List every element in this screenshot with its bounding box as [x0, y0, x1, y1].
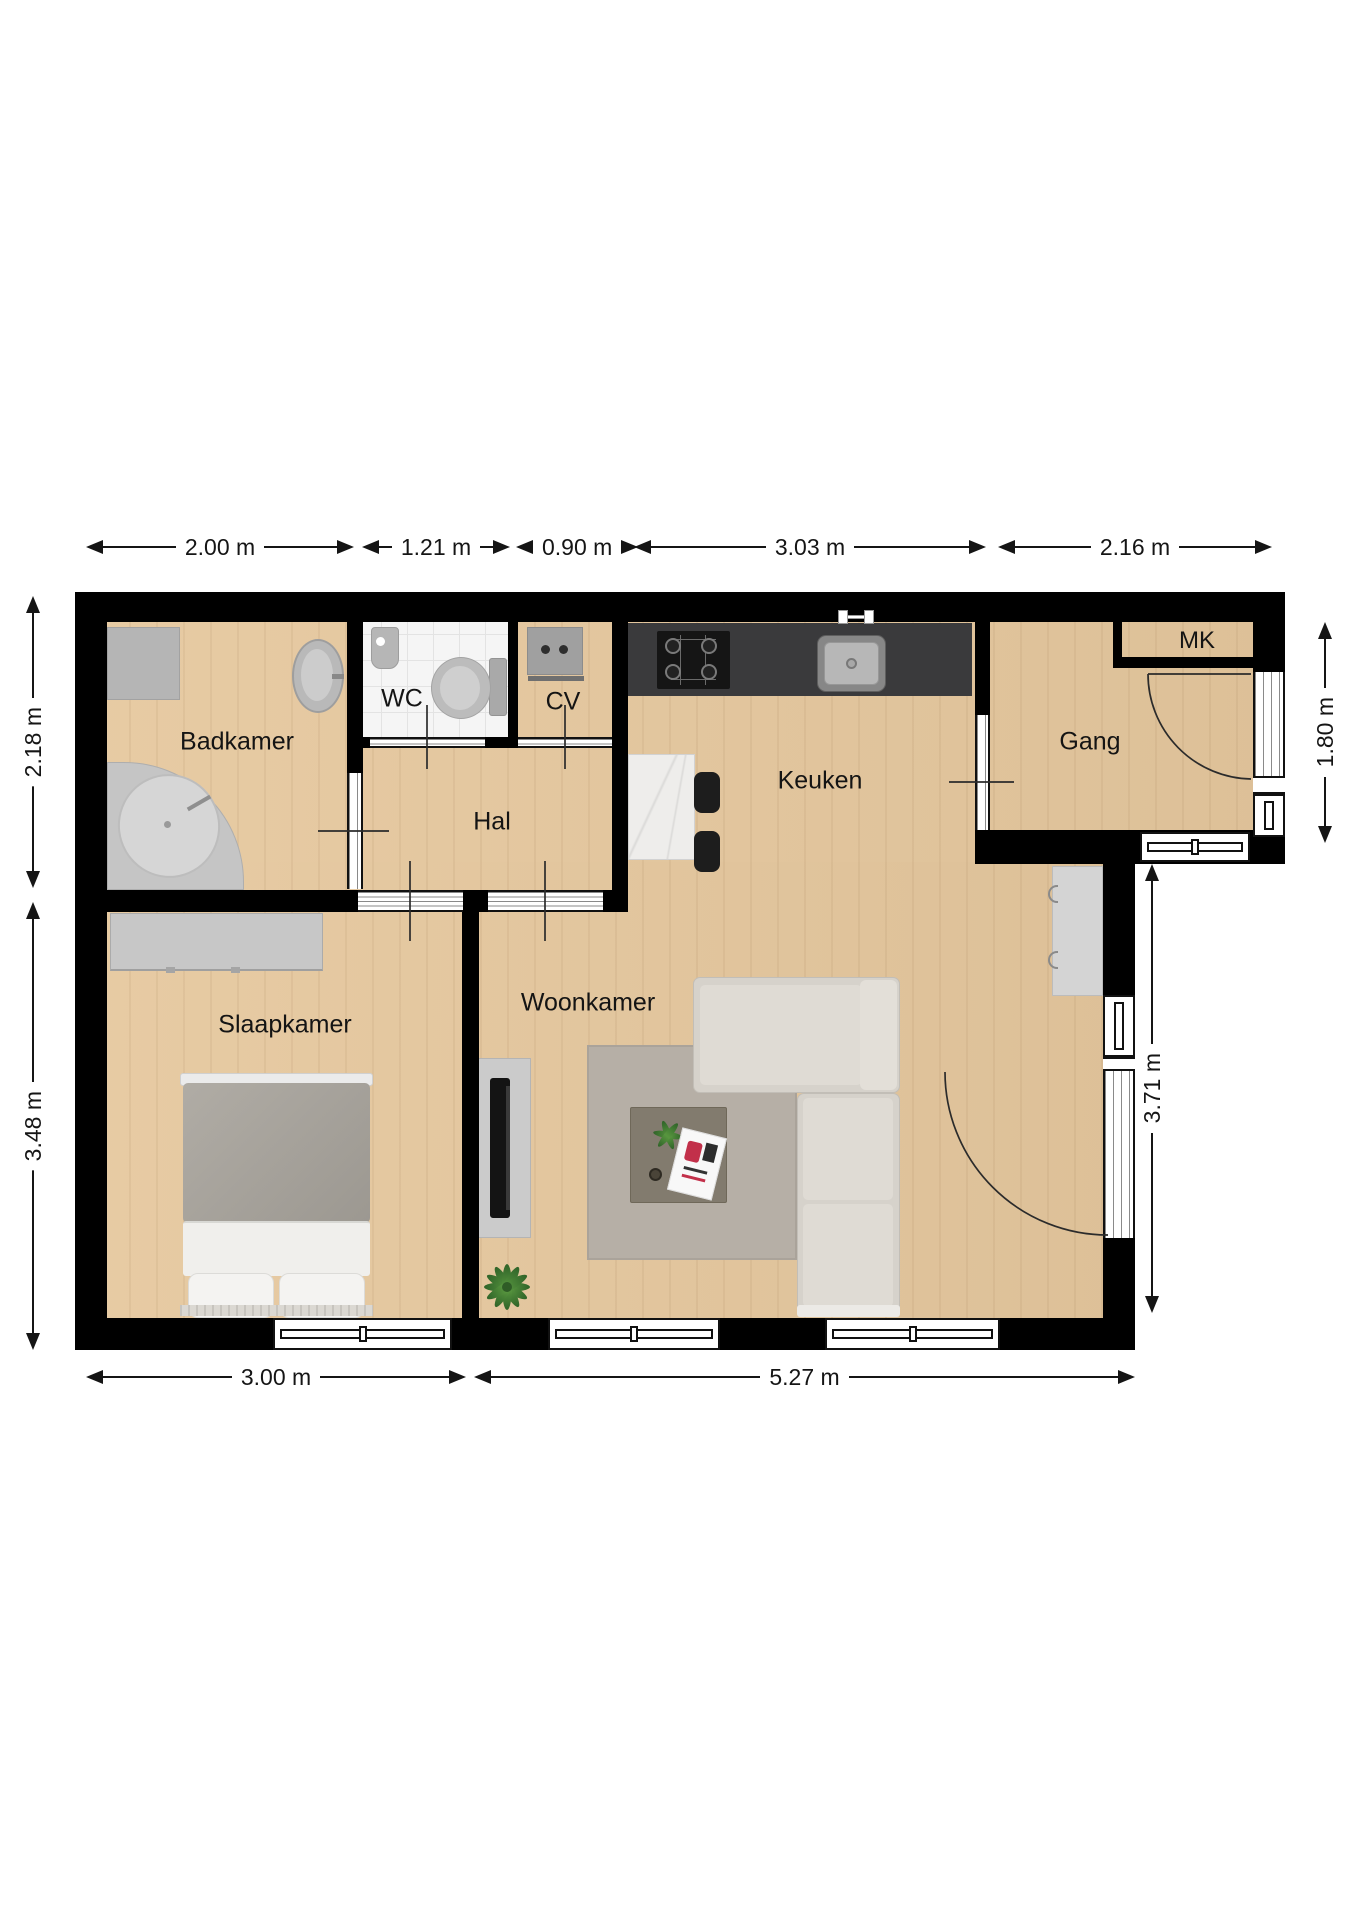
dim-top-5: 2.16 m	[998, 534, 1272, 560]
room-label-keuken: Keuken	[778, 767, 863, 796]
floor-plan-page: Badkamer WC CV Hal Keuken Gang MK Slaapk…	[0, 0, 1358, 1920]
room-label-woonkamer: Woonkamer	[521, 989, 655, 1018]
dim-top-1: 2.00 m	[86, 534, 354, 560]
dim-top-2: 1.21 m	[362, 534, 510, 560]
room-label-cv: CV	[546, 688, 581, 717]
dim-right-2: 3.71 m	[1139, 864, 1165, 1313]
room-label-gang: Gang	[1059, 728, 1120, 757]
room-label-badkamer: Badkamer	[180, 728, 294, 757]
dim-bottom-1: 3.00 m	[86, 1364, 466, 1390]
dim-bottom-2: 5.27 m	[474, 1364, 1135, 1390]
room-label-wc: WC	[381, 685, 423, 714]
dim-top-3: 0.90 m	[516, 534, 628, 560]
dim-top-4: 3.03 m	[634, 534, 986, 560]
dim-right-1: 1.80 m	[1312, 622, 1338, 843]
dim-left-1: 2.18 m	[20, 596, 46, 888]
room-label-slaapkamer: Slaapkamer	[218, 1011, 351, 1040]
room-label-mk: MK	[1179, 627, 1215, 655]
room-label-hal: Hal	[473, 808, 511, 837]
dim-left-2: 3.48 m	[20, 902, 46, 1350]
